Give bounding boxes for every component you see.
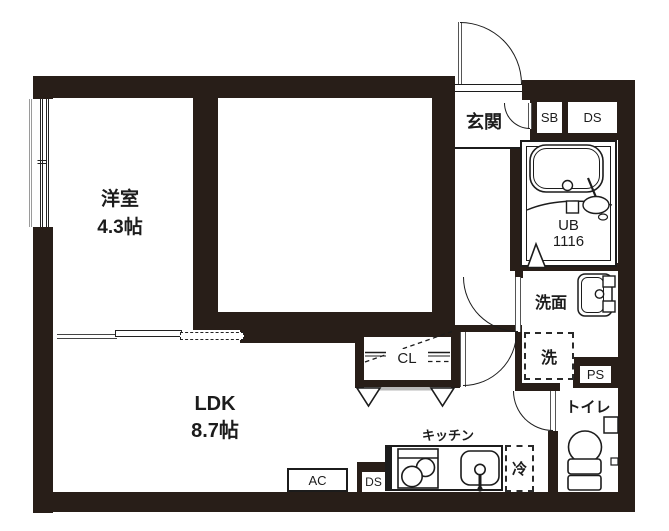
wall-partition-right <box>240 329 360 343</box>
refrigerator-label: 冷 <box>512 458 527 479</box>
wall-hall-ub <box>510 148 520 270</box>
washroom-door-arc <box>463 277 518 332</box>
air-conditioner: AC <box>287 468 348 492</box>
window-pane-2 <box>46 99 49 227</box>
window-outer-line <box>29 99 32 227</box>
toilet-door-arc <box>513 391 553 431</box>
floor-plan: SB DS PS AC DS 洗 冷 <box>0 0 669 531</box>
kitchen-counter <box>385 445 503 491</box>
ldk-label: LDK 8.7帖 <box>145 391 285 445</box>
unit-bath-label: UB 1116 <box>520 218 617 250</box>
wall-void-bottom <box>215 312 455 330</box>
wall-washroom-bottom <box>515 383 560 391</box>
wall-hall-left <box>432 78 455 330</box>
wall-right <box>618 80 635 512</box>
washroom-label: 洗面 <box>523 293 579 315</box>
wall-bottom <box>33 492 635 512</box>
kitchen-label: キッチン <box>392 427 504 445</box>
toilet-label: トイレ <box>558 398 618 418</box>
refrigerator-space: 冷 <box>505 445 534 492</box>
sliding-door-track <box>57 334 117 339</box>
duct-space-bottom-label: DS <box>365 475 382 489</box>
shoe-box-label: SB <box>541 110 558 125</box>
unit-bath-line1: UB <box>520 218 617 234</box>
bedroom-name: 洋室 <box>50 186 190 214</box>
shoe-box: SB <box>537 102 562 133</box>
bedroom-size: 4.3帖 <box>50 214 190 242</box>
toilet-bowl <box>568 431 602 490</box>
vanity-sink <box>578 274 615 316</box>
wall-bedroom-right <box>193 98 218 330</box>
wall-toilet-left <box>548 431 558 492</box>
ldk-door-arc <box>463 332 517 386</box>
sliding-door-panel-dashed <box>180 332 244 340</box>
wall-left-lower <box>33 227 53 513</box>
unit-bath-line2: 1116 <box>520 234 617 250</box>
duct-space-top: DS <box>568 102 617 133</box>
entrance-step-line <box>455 147 521 149</box>
entrance-threshold <box>455 84 522 92</box>
washing-machine-space: 洗 <box>524 332 574 380</box>
entrance-label: 玄関 <box>455 110 513 134</box>
ldk-size: 8.7帖 <box>145 418 285 445</box>
window-pane-1 <box>40 99 43 227</box>
toilet-paper-holder <box>604 417 618 465</box>
sliding-door-panel <box>115 330 182 337</box>
duct-space-top-label: DS <box>583 110 601 125</box>
duct-space-bottom: DS <box>362 472 385 492</box>
pipe-space: PS <box>580 366 611 383</box>
bedroom-label: 洋室 4.3帖 <box>50 186 190 242</box>
wall-top-left <box>33 76 455 98</box>
washing-machine-label: 洗 <box>541 344 557 368</box>
entrance-door-arc <box>460 22 522 84</box>
pipe-space-label: PS <box>587 367 604 382</box>
air-conditioner-label: AC <box>308 473 326 488</box>
wall-left-upper <box>33 76 53 99</box>
ldk-name: LDK <box>145 391 285 418</box>
closet-label: CL <box>386 349 428 369</box>
